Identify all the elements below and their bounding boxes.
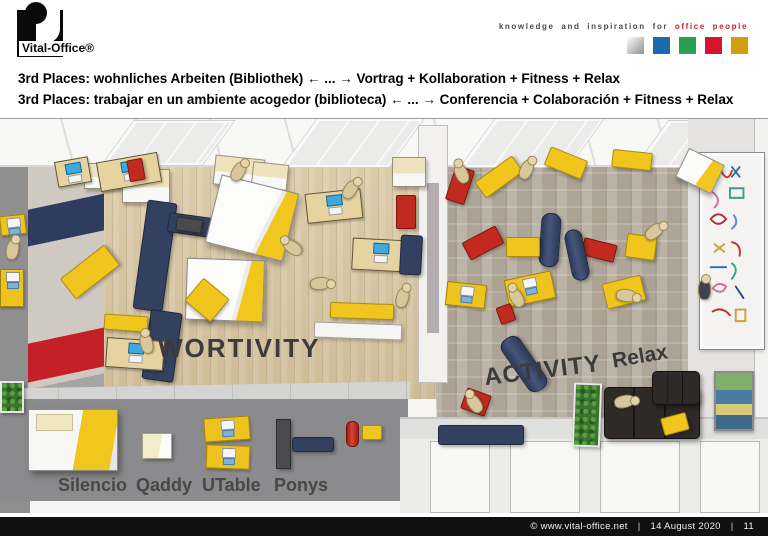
- tagline: knowledge and inspiration for office peo…: [499, 22, 748, 31]
- furniture-yellow: [330, 302, 395, 320]
- room-label-wortivity: WORTIVITY: [158, 333, 320, 364]
- footer-separator: |: [731, 521, 734, 532]
- footer-page-number: 11: [744, 521, 754, 532]
- palette-square-4: [731, 37, 748, 54]
- legend-label-ponys: Ponys: [274, 475, 328, 496]
- legend-label-silencio: Silencio: [58, 475, 127, 496]
- furniture-deskY: [206, 444, 251, 470]
- slide-title-spanish: 3rd Places: trabajar en un ambiente acog…: [18, 92, 733, 107]
- furniture-person: [394, 286, 412, 310]
- furniture-cubeS: [675, 148, 725, 194]
- furniture-deskY: [0, 269, 24, 307]
- logo-curve-notch: [25, 2, 47, 24]
- palette-square-3: [705, 37, 722, 54]
- furniture-yellow: [544, 146, 589, 180]
- furniture-layer: [0, 119, 768, 513]
- furniture-sofaB: [652, 371, 700, 405]
- footer-separator: |: [638, 521, 641, 532]
- furniture-dark: [276, 419, 291, 469]
- tagline-plain: knowledge and inspiration for: [499, 22, 668, 31]
- palette-square-1: [653, 37, 670, 54]
- furniture-navy: [438, 425, 524, 445]
- furniture-navy: [292, 437, 334, 452]
- furniture-red: [396, 195, 416, 229]
- legend-label-utable: UTable: [202, 475, 261, 496]
- furniture-plant: [0, 381, 24, 413]
- slide: Vital-Office® knowledge and inspiration …: [0, 0, 768, 538]
- furniture-red: [462, 225, 505, 260]
- legend-label-qaddy: Qaddy: [136, 475, 192, 496]
- furniture-cubeS2: [142, 433, 172, 459]
- office-render: WORTIVITY ACTIVITY Relax Silencio Qaddy …: [0, 118, 768, 513]
- tagline-accent: office people: [675, 22, 748, 31]
- palette-square-2: [679, 37, 696, 54]
- furniture-whitef: [314, 321, 403, 340]
- palette-square-0: [627, 37, 644, 54]
- furniture-yellow: [611, 149, 653, 171]
- furniture-navy: [399, 234, 423, 275]
- palette-row: [627, 37, 748, 54]
- furniture-yellow: [362, 425, 382, 440]
- furniture-deskY: [0, 214, 27, 237]
- furniture-cabinet: [392, 157, 426, 187]
- furniture-person: [4, 238, 20, 261]
- furniture-person: [516, 157, 537, 182]
- furniture-redC: [346, 421, 359, 447]
- footer-date: 14 August 2020: [651, 521, 721, 532]
- footer-bar: © www.vital-office.net | 14 August 2020 …: [0, 517, 768, 536]
- slide-title-german: 3rd Places: wohnliches Arbeiten (Bibliot…: [18, 71, 620, 86]
- footer-copyright: © www.vital-office.net: [530, 521, 627, 532]
- furniture-desk: [105, 337, 165, 371]
- furniture-yellow: [475, 155, 524, 198]
- furniture-roller: [538, 212, 562, 267]
- furniture-person: [615, 288, 637, 303]
- furniture-person: [309, 276, 331, 291]
- furniture-deskY: [445, 281, 487, 309]
- furniture-personD: [698, 279, 711, 300]
- logo-wordmark: Vital-Office®: [19, 41, 97, 56]
- furniture-deskY: [203, 415, 251, 442]
- furniture-yellow: [60, 245, 120, 300]
- furniture-yellow: [506, 237, 540, 257]
- furniture-cubeL: [28, 409, 118, 471]
- furniture-plant: [572, 383, 602, 448]
